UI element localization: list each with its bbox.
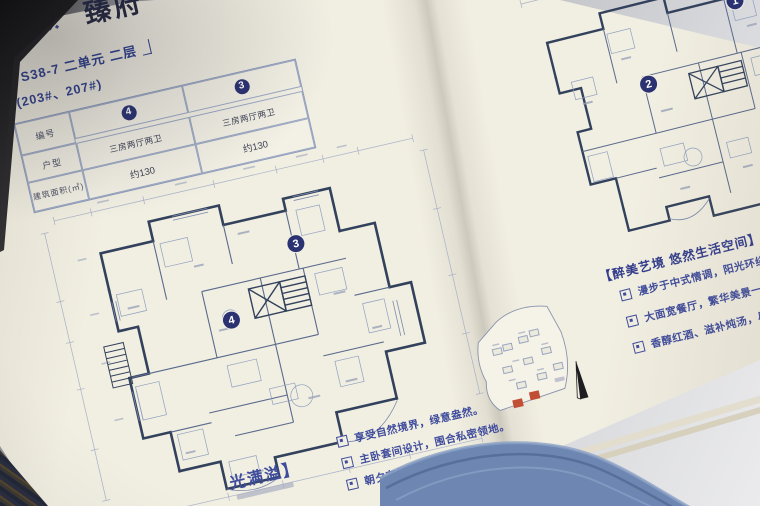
square-bullet-icon (632, 341, 645, 354)
unit-3-badge: 3 (233, 77, 251, 95)
floor-plan-right: 2 1 (499, 0, 760, 259)
page-title: 臻府 (80, 0, 147, 31)
square-bullet-icon (619, 288, 632, 301)
square-bullet-icon (341, 456, 354, 469)
bracket-left (5, 70, 17, 87)
developer-logo-icon (0, 0, 58, 29)
diamond-dots-ornament (7, 25, 58, 40)
square-bullet-icon (626, 314, 639, 327)
blue-cover-edge (372, 408, 702, 506)
photo-of-brochure-spread: 臻府 S38-7 二单元 二层 (203#、207#) 编号 4 3 户型 三房… (0, 0, 760, 506)
square-bullet-icon (346, 477, 359, 490)
unit-4-badge: 4 (120, 103, 138, 121)
bracket-right (140, 39, 152, 56)
square-bullet-icon (336, 435, 349, 448)
